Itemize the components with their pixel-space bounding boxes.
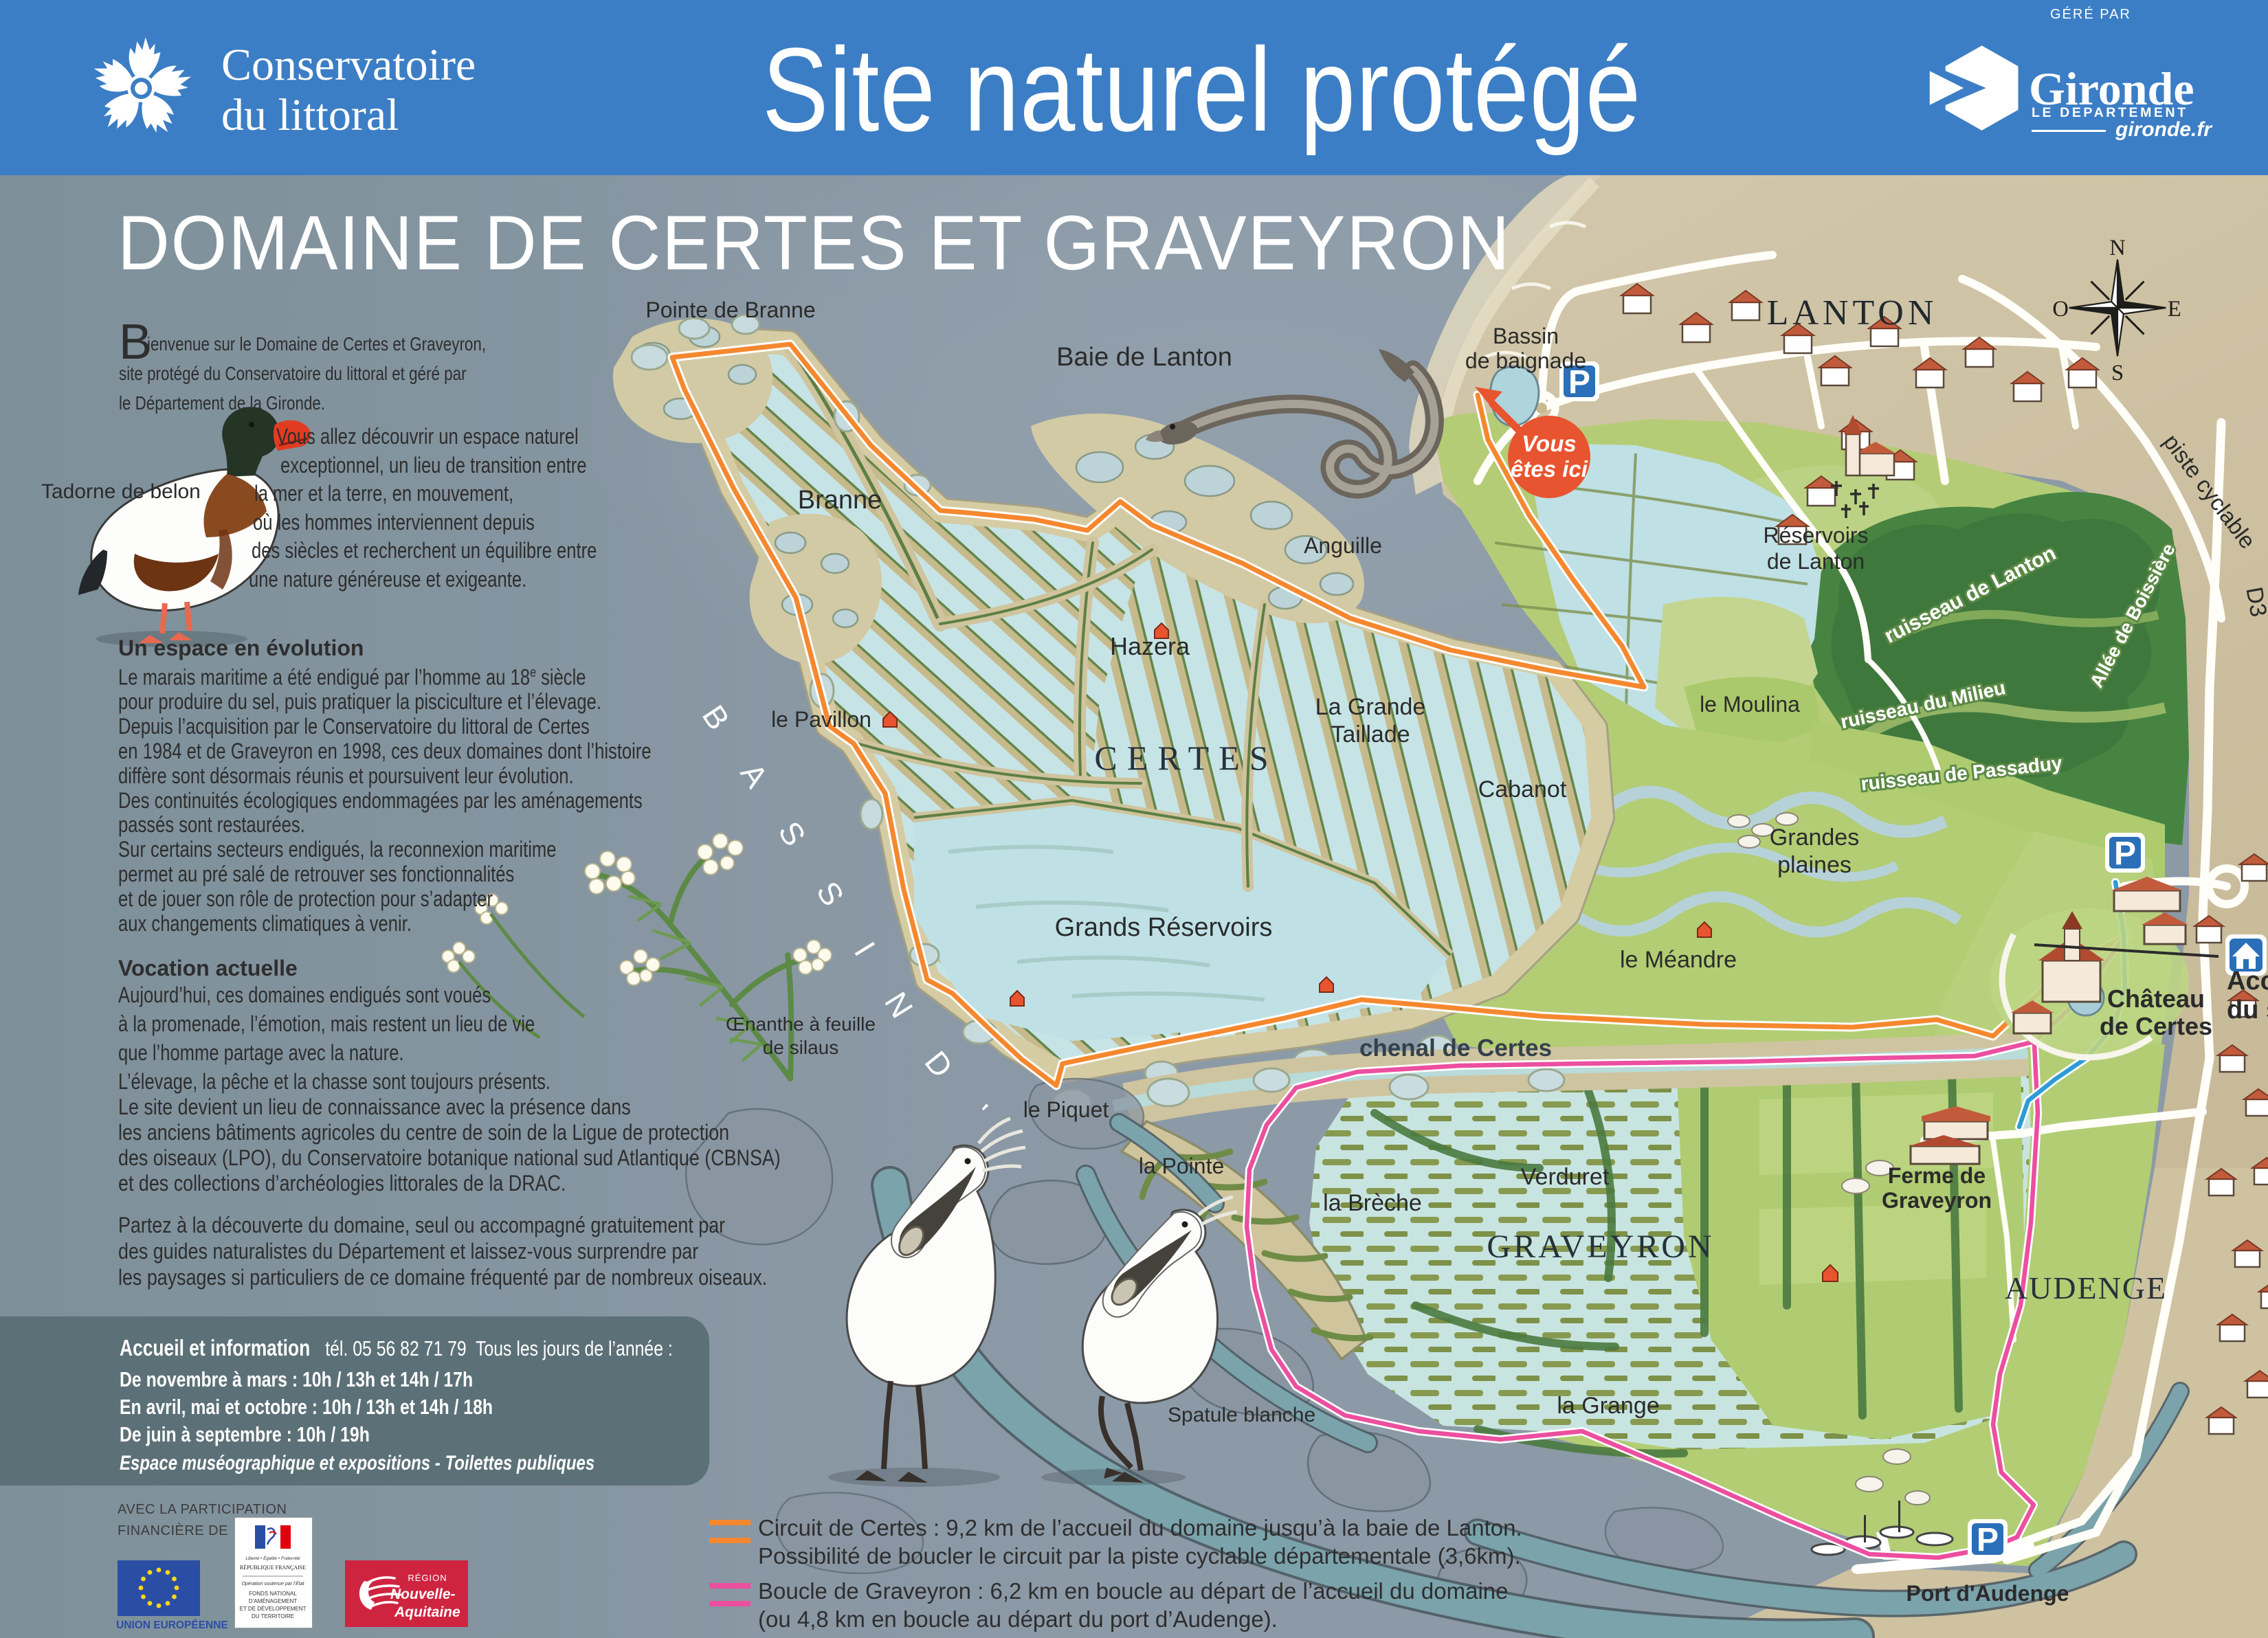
svg-text:S: S [2111, 361, 2124, 385]
svg-text:Ferme de: Ferme de [1888, 1163, 1986, 1188]
svg-text:GRAVEYRON: GRAVEYRON [1487, 1228, 1714, 1265]
svg-text:CERTES: CERTES [1094, 739, 1278, 777]
svg-text:Spatule blanche: Spatule blanche [1168, 1404, 1315, 1426]
svg-text:Château: Château [2107, 985, 2205, 1013]
svg-text:Accueil: Accueil [2227, 967, 2268, 996]
svg-text:Nouvelle-: Nouvelle- [390, 1586, 456, 1602]
svg-text:le Moulina: le Moulina [1700, 692, 1800, 717]
svg-text:Bassin: Bassin [1493, 324, 1559, 348]
svg-text:Baie de Lanton: Baie de Lanton [1056, 343, 1232, 372]
svg-text:plaines: plaines [1777, 852, 1852, 878]
svg-text:Opération soutenue par l’État: Opération soutenue par l’État [241, 1580, 304, 1586]
svg-text:de Certes: de Certes [2100, 1012, 2212, 1040]
svg-text:E: E [2168, 297, 2181, 322]
svg-text:Grandes: Grandes [1770, 824, 1859, 851]
svg-text:O: O [2052, 297, 2069, 322]
svg-text:D’AMÉNAGEMENT: D’AMÉNAGEMENT [249, 1598, 297, 1604]
svg-text:Liberté • Égalité • Fraternité: Liberté • Égalité • Fraternité [245, 1555, 300, 1561]
svg-text:FONDS NATIONAL: FONDS NATIONAL [249, 1591, 297, 1597]
svg-text:AUDENGE: AUDENGE [2005, 1270, 2167, 1305]
svg-text:Œnanthe à feuille: Œnanthe à feuille [726, 1013, 876, 1035]
svg-text:Branne: Branne [798, 486, 882, 515]
svg-text:ET DE DÉVELOPPEMENT: ET DE DÉVELOPPEMENT [240, 1606, 307, 1612]
svg-text:Graveyron: Graveyron [1882, 1188, 1992, 1213]
svg-text:de silaus: de silaus [763, 1037, 839, 1058]
svg-text:N: N [2109, 236, 2126, 260]
svg-text:La Grande: La Grande [1315, 694, 1426, 720]
svg-text:le Piquet: le Piquet [1023, 1097, 1109, 1122]
svg-text:le Pavillon: le Pavillon [771, 707, 871, 732]
svg-text:Hazera: Hazera [1110, 632, 1190, 660]
svg-text:Cabanot: Cabanot [1478, 776, 1567, 803]
svg-text:de Lanton: de Lanton [1767, 549, 1865, 574]
svg-text:la Grange: la Grange [1557, 1393, 1659, 1419]
svg-text:Port d'Audenge: Port d'Audenge [1906, 1581, 2069, 1606]
svg-text:Grands Réservoirs: Grands Réservoirs [1055, 913, 1273, 942]
svg-text:de baignade: de baignade [1465, 348, 1586, 373]
svg-text:P: P [1977, 1522, 1999, 1558]
svg-text:DU TERRITOIRE: DU TERRITOIRE [252, 1613, 294, 1619]
svg-text:Anguille: Anguille [1304, 533, 1382, 558]
svg-text:Verduret: Verduret [1521, 1164, 1610, 1190]
svg-text:la Brèche: la Brèche [1323, 1190, 1422, 1216]
svg-text:RÉPUBLIQUE FRANÇAISE: RÉPUBLIQUE FRANÇAISE [240, 1564, 306, 1571]
svg-text:du site: du site [2227, 996, 2268, 1024]
svg-text:Aquitaine: Aquitaine [394, 1604, 460, 1620]
svg-text:Vous: Vous [1522, 431, 1576, 456]
svg-text:P: P [2114, 835, 2136, 872]
svg-text:RÉGION: RÉGION [408, 1573, 447, 1583]
svg-text:Taillade: Taillade [1331, 721, 1410, 748]
svg-text:chenal de Certes: chenal de Certes [1359, 1035, 1552, 1062]
svg-text:Tadorne de belon: Tadorne de belon [41, 480, 201, 503]
svg-text:Réservoirs: Réservoirs [1764, 523, 1869, 548]
svg-text:LANTON: LANTON [1767, 293, 1938, 333]
svg-text:la Pointe: la Pointe [1139, 1154, 1225, 1178]
svg-text:le Méandre: le Méandre [1620, 947, 1737, 973]
svg-text:Pointe de Branne: Pointe de Branne [645, 298, 815, 322]
svg-text:êtes ici: êtes ici [1511, 456, 1588, 482]
